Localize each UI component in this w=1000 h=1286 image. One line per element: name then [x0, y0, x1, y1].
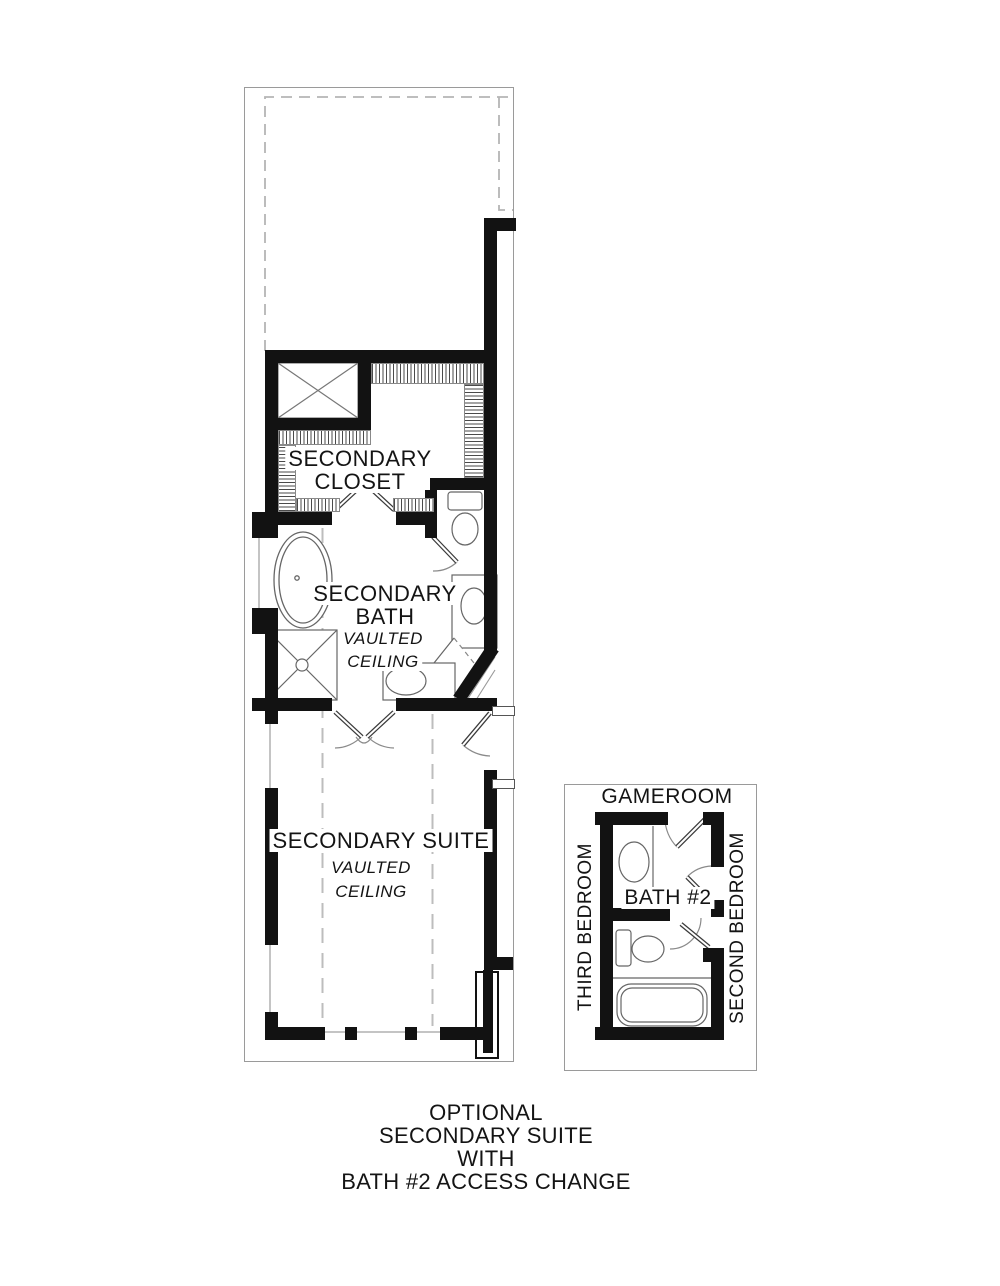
room-label-secondary-closet-line2: CLOSET	[311, 470, 408, 493]
wc-door	[433, 537, 457, 571]
wall-segment	[252, 512, 278, 538]
wall-segment	[265, 350, 278, 525]
wall-segment	[265, 788, 278, 945]
wall-segment	[265, 350, 497, 363]
toilet-fixture-wc	[448, 492, 482, 545]
room-label-secondary-suite: SECONDARY SUITE	[270, 829, 493, 852]
suite-double-door	[335, 712, 394, 748]
wall-segment	[484, 957, 513, 970]
chase-x-box	[278, 363, 358, 418]
floor-plan-drawing-svg	[0, 0, 1000, 1286]
wall-segment	[600, 812, 613, 1040]
bath2-inner-door	[670, 918, 709, 949]
wall-stub	[492, 706, 515, 716]
wall-segment	[265, 1027, 325, 1040]
wall-segment	[711, 812, 724, 867]
wall-segment	[265, 698, 278, 724]
room-label-secondary-closet-line1: SECONDARY	[285, 447, 434, 470]
bath2-bathtub	[617, 984, 707, 1026]
room-label-gameroom: GAMEROOM	[598, 786, 735, 808]
wall-segment	[595, 1027, 723, 1040]
room-note-secondary-bath-line2: CEILING	[344, 653, 422, 671]
wall-segment	[405, 1027, 417, 1040]
wall-stub	[492, 779, 515, 789]
wall-segment	[613, 908, 670, 921]
bathtub-fixture	[274, 532, 332, 628]
room-label-second-bedroom: SECOND BEDROOM	[727, 830, 749, 1026]
wall-segment	[396, 512, 434, 525]
wall-segment	[396, 698, 497, 711]
room-note-secondary-suite-line2: CEILING	[332, 883, 410, 901]
room-label-secondary-bath-line2: BATH	[352, 605, 417, 628]
window	[325, 1031, 345, 1033]
room-label-bath-2: BATH #2	[621, 887, 714, 909]
room-note-secondary-bath-line1: VAULTED	[340, 630, 426, 648]
wall-segment	[483, 970, 493, 1053]
window	[269, 724, 271, 788]
window	[357, 1031, 405, 1033]
wall-segment	[440, 1027, 483, 1040]
dashed-area-outline	[265, 97, 513, 351]
shelf-hatch	[393, 498, 434, 512]
wall-segment	[265, 418, 371, 430]
room-label-secondary-bath-line1: SECONDARY	[310, 582, 459, 605]
wall-segment	[484, 218, 497, 652]
shelf-hatch	[296, 498, 340, 512]
room-label-third-bedroom: THIRD BEDROOM	[575, 841, 597, 1013]
wall-segment	[484, 770, 497, 970]
wall-segment	[252, 698, 332, 711]
shelf-hatch	[278, 430, 371, 445]
window	[269, 945, 271, 1012]
wall-segment	[345, 1027, 357, 1040]
shelf-hatch	[371, 363, 484, 384]
wall-segment	[430, 478, 497, 490]
shelf-hatch	[464, 384, 484, 478]
bath2-toilet	[616, 930, 664, 966]
gameroom-door	[665, 818, 706, 847]
suite-entry-door	[463, 713, 490, 756]
window	[258, 538, 260, 608]
window	[417, 1031, 440, 1033]
room-note-secondary-suite-line1: VAULTED	[328, 859, 414, 877]
floor-plan-page: SECONDARY CLOSET SECONDARY BATH VAULTED …	[0, 0, 1000, 1286]
caption-line-4: BATH #2 ACCESS CHANGE	[341, 1169, 631, 1195]
